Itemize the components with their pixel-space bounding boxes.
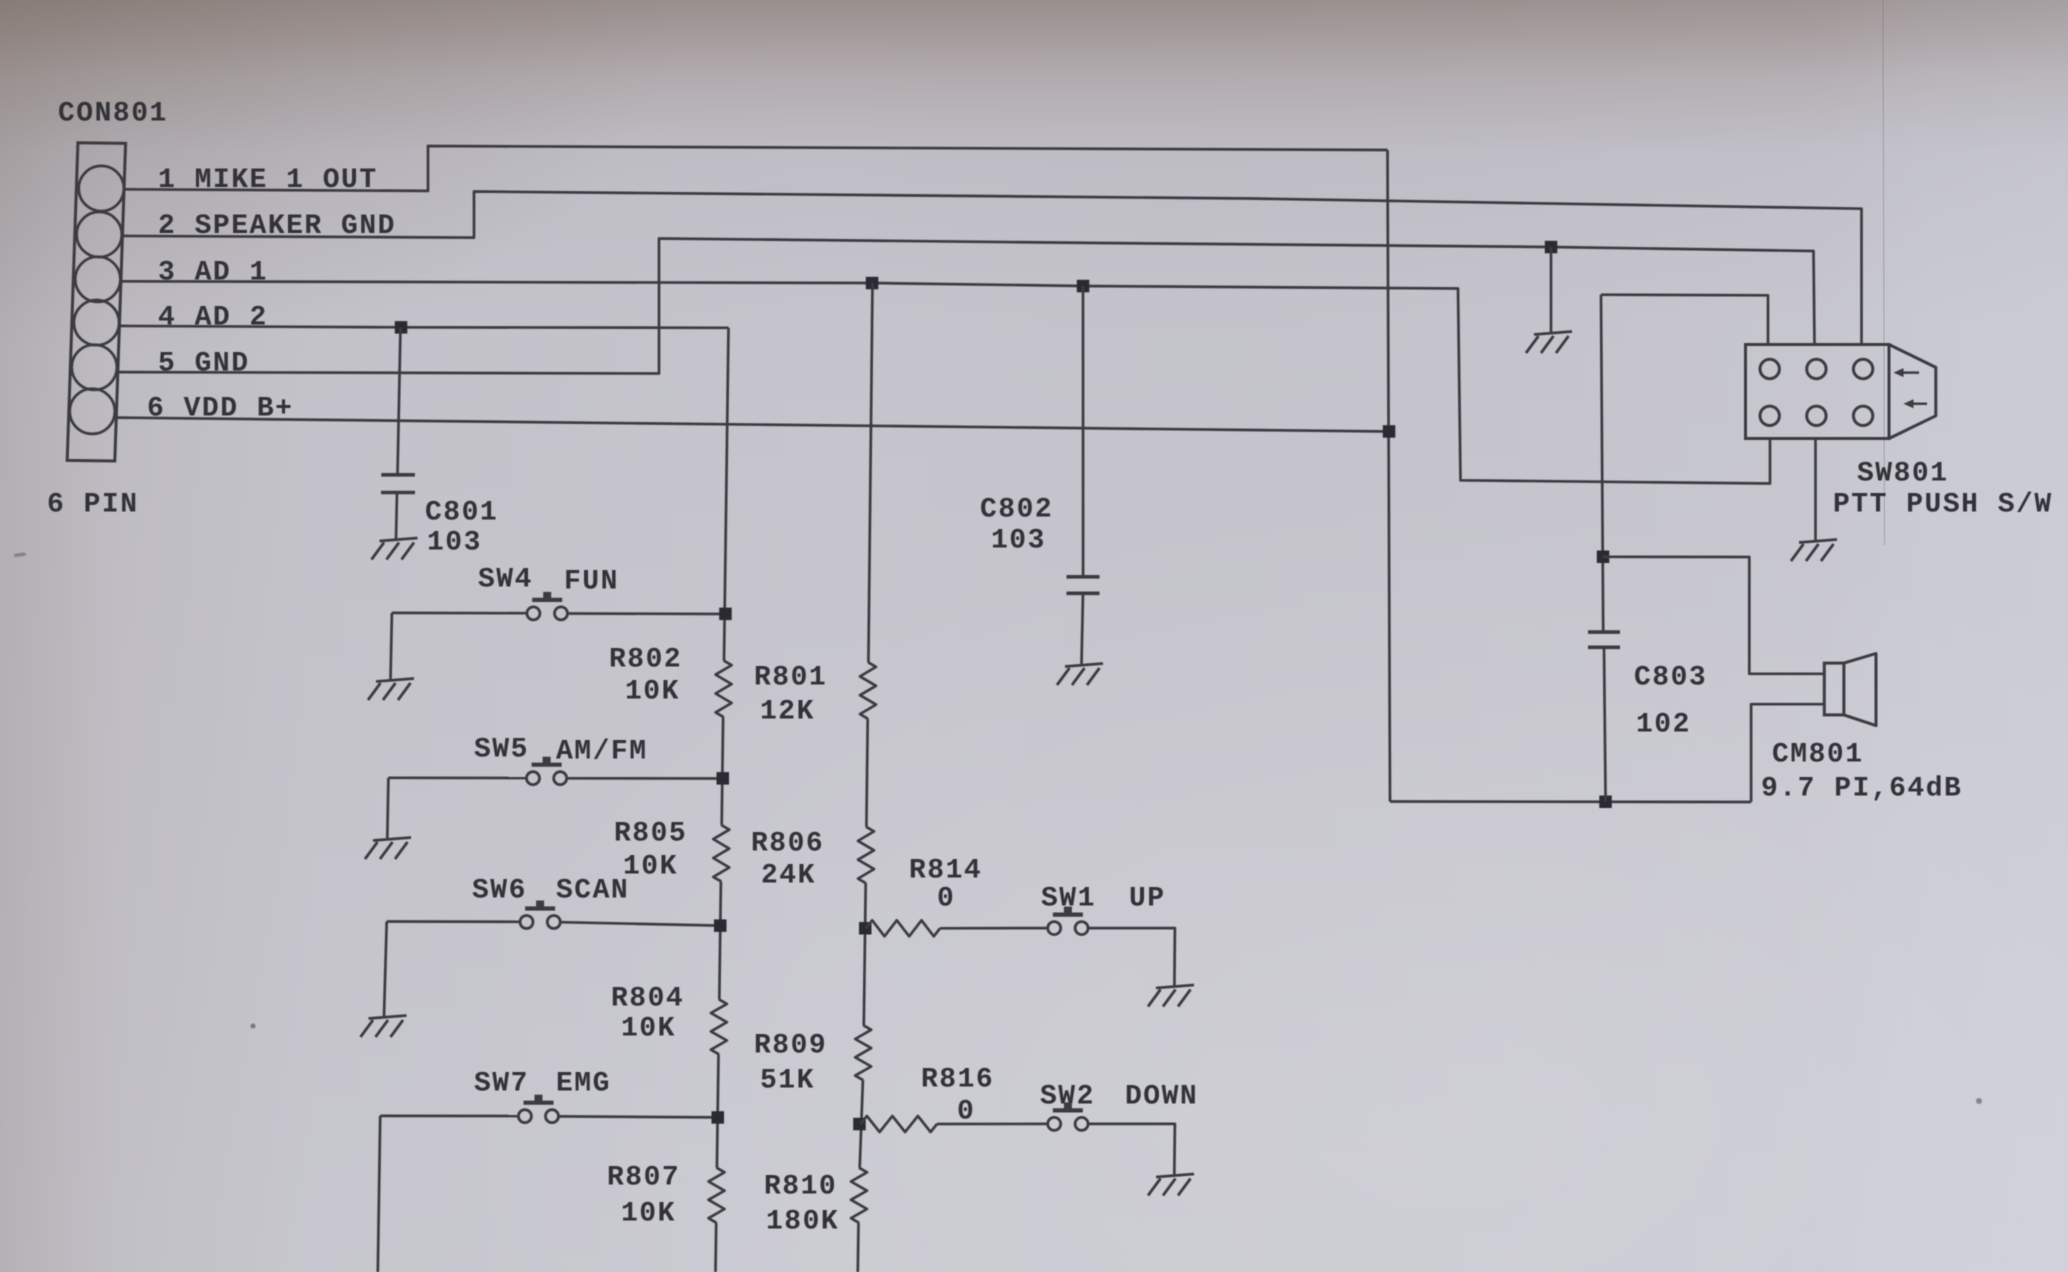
svg-text:10K: 10K [623,851,678,882]
svg-text:C802: C802 [980,494,1053,525]
svg-text:51K: 51K [760,1065,815,1096]
svg-text:FUN: FUN [564,566,619,597]
svg-text:R810: R810 [764,1171,837,1202]
svg-text:SW801: SW801 [1857,458,1949,489]
svg-text:SW4: SW4 [478,564,533,595]
svg-text:C801: C801 [425,497,498,528]
svg-text:UP: UP [1129,883,1166,914]
svg-text:12K: 12K [760,696,815,727]
svg-text:R802: R802 [609,644,682,675]
svg-text:10K: 10K [621,1198,676,1229]
svg-text:SCAN: SCAN [556,875,629,906]
svg-text:SW7: SW7 [474,1068,529,1099]
svg-text:R806: R806 [751,828,824,859]
svg-text:10K: 10K [621,1013,676,1044]
svg-text:SW6: SW6 [472,875,527,906]
svg-text:103: 103 [427,527,482,558]
svg-text:180K: 180K [766,1206,839,1237]
svg-text:R816: R816 [921,1064,994,1095]
svg-text:R814: R814 [909,855,982,886]
svg-text:PTT PUSH S/W: PTT PUSH S/W [1833,489,2053,520]
svg-text:0: 0 [937,883,955,914]
svg-text:R807: R807 [607,1162,680,1193]
svg-text:R804: R804 [611,983,684,1014]
svg-text:3 AD 1: 3 AD 1 [158,257,268,288]
svg-text:C803: C803 [1634,662,1707,693]
svg-text:R805: R805 [614,818,687,849]
svg-text:103: 103 [991,525,1046,556]
svg-text:CM801: CM801 [1772,739,1864,770]
svg-text:DOWN: DOWN [1125,1081,1198,1112]
svg-text:24K: 24K [761,860,816,891]
svg-text:AM/FM: AM/FM [556,736,648,767]
svg-text:EMG: EMG [556,1068,611,1099]
svg-text:10K: 10K [625,676,680,707]
svg-text:4 AD 2: 4 AD 2 [158,302,268,333]
svg-text:SW5: SW5 [474,734,529,765]
svg-text:R809: R809 [754,1030,827,1061]
svg-text:5 GND: 5 GND [158,348,250,379]
svg-text:CON801: CON801 [58,98,168,129]
svg-text:9.7 PI,64dB: 9.7 PI,64dB [1761,773,1962,804]
svg-text:102: 102 [1636,709,1691,740]
svg-text:R801: R801 [754,662,827,693]
svg-text:6 PIN: 6 PIN [47,489,139,520]
